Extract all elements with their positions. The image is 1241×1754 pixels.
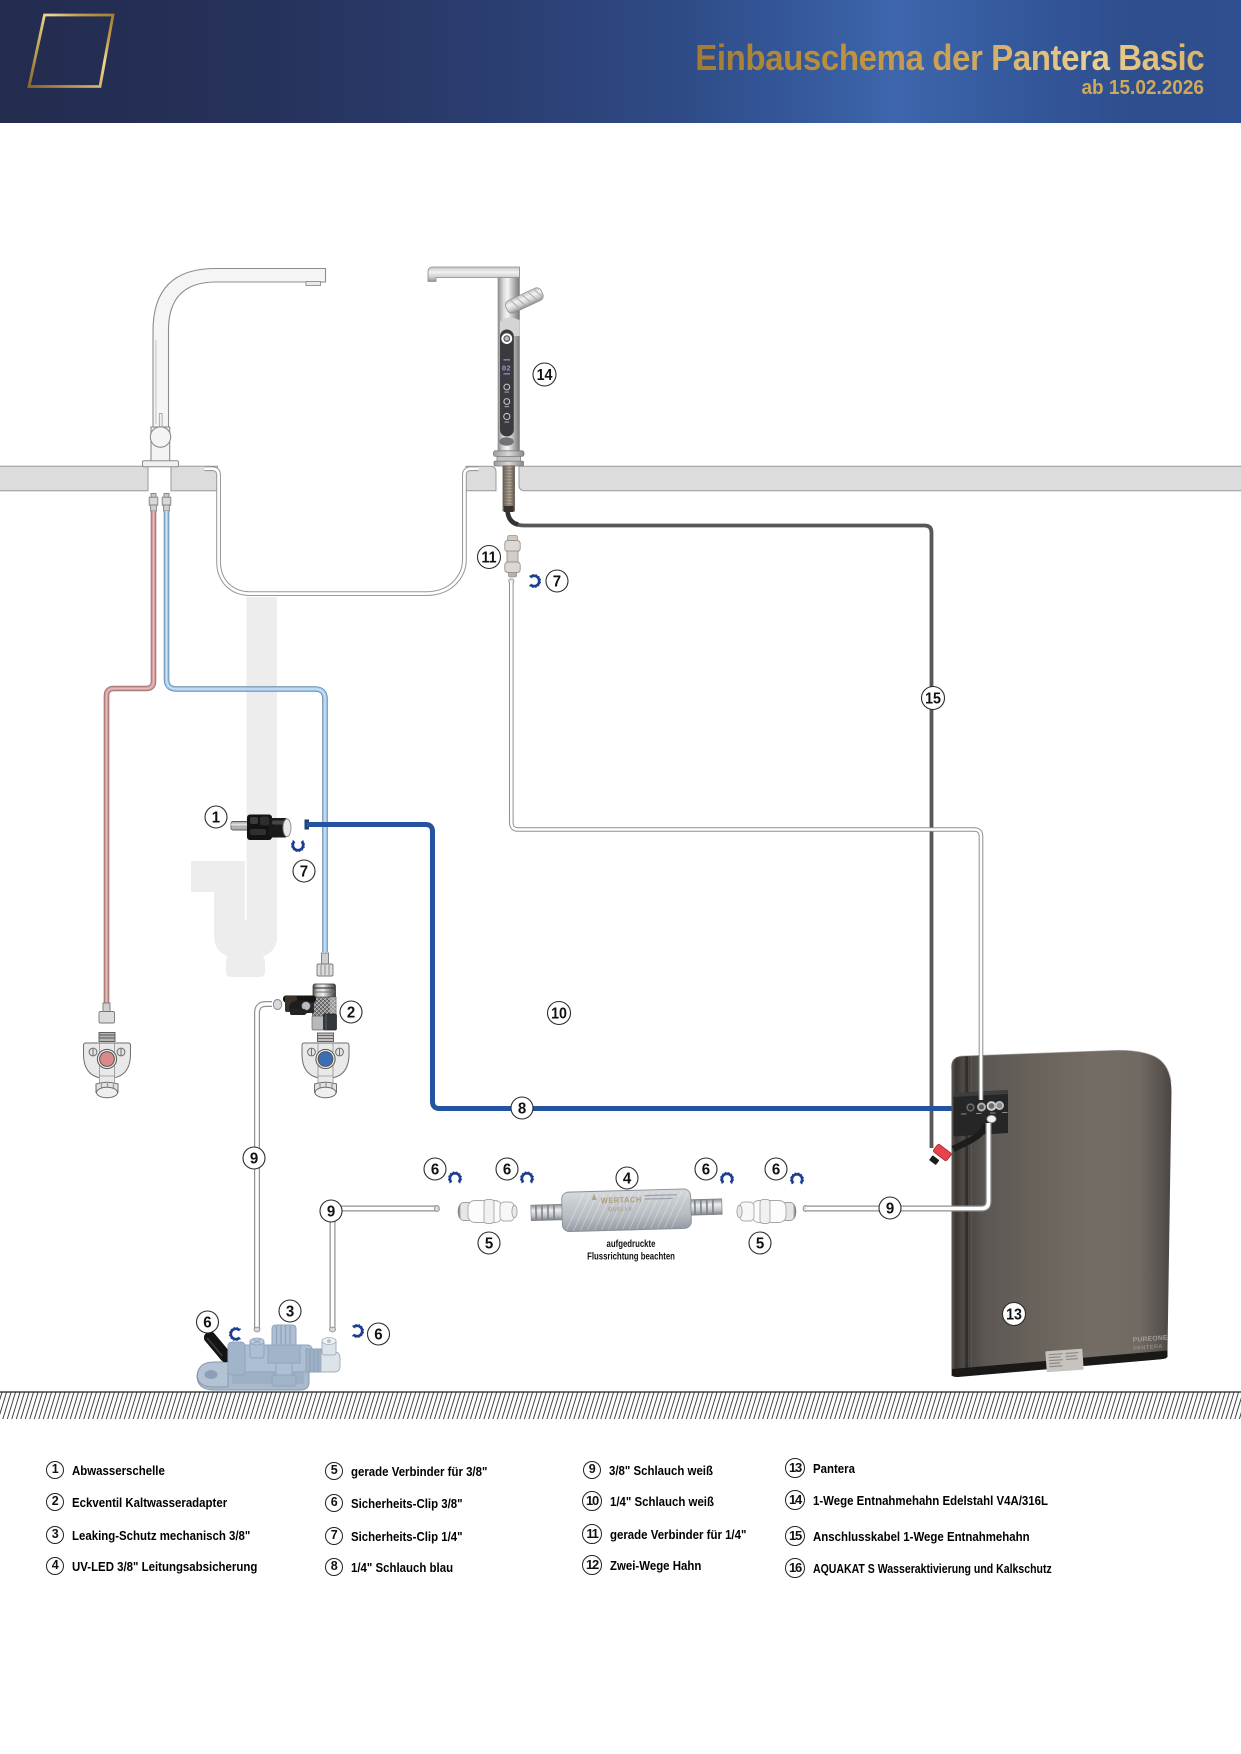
svg-text:5: 5 bbox=[485, 1235, 494, 1252]
svg-text:10: 10 bbox=[551, 1006, 567, 1023]
svg-text:6: 6 bbox=[431, 1161, 439, 1178]
svg-text:Flussrichtung beachten: Flussrichtung beachten bbox=[587, 1251, 675, 1262]
svg-text:3: 3 bbox=[286, 1303, 294, 1320]
svg-text:6: 6 bbox=[702, 1161, 710, 1178]
svg-text:9: 9 bbox=[886, 1200, 894, 1217]
svg-text:6: 6 bbox=[772, 1161, 780, 1178]
svg-text:6: 6 bbox=[374, 1326, 382, 1343]
svg-text:11: 11 bbox=[481, 550, 496, 567]
svg-text:4: 4 bbox=[623, 1170, 632, 1187]
svg-text:14: 14 bbox=[537, 368, 554, 385]
svg-text:9: 9 bbox=[250, 1150, 258, 1167]
svg-text:5: 5 bbox=[756, 1235, 765, 1252]
svg-text:8: 8 bbox=[518, 1100, 527, 1117]
svg-text:6: 6 bbox=[203, 1314, 211, 1331]
svg-text:02: 02 bbox=[502, 366, 512, 374]
svg-text:7: 7 bbox=[300, 863, 308, 880]
svg-text:aufgedruckte: aufgedruckte bbox=[607, 1238, 656, 1249]
svg-text:6: 6 bbox=[503, 1161, 511, 1178]
svg-text:1: 1 bbox=[212, 809, 221, 826]
svg-text:2: 2 bbox=[347, 1004, 355, 1021]
svg-text:WERTACH: WERTACH bbox=[601, 1195, 642, 1205]
svg-text:7: 7 bbox=[553, 573, 561, 590]
svg-text:13: 13 bbox=[1006, 1307, 1022, 1324]
svg-text:9: 9 bbox=[327, 1203, 335, 1220]
svg-text:15: 15 bbox=[925, 691, 941, 708]
svg-text:QUELLE: QUELLE bbox=[608, 1206, 633, 1213]
